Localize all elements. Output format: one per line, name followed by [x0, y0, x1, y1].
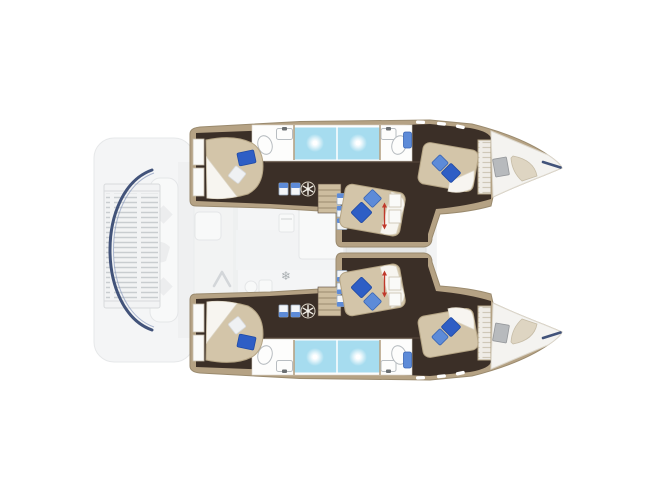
snowflake-icon: ❄ [281, 269, 291, 283]
stern-platform [104, 170, 160, 330]
screenshot-canvas: ❄ [0, 0, 667, 500]
catamaran-floorplan: ❄ [0, 0, 667, 500]
cockpit-table [195, 212, 221, 240]
galley-sink [245, 281, 257, 293]
oven-icon [279, 214, 294, 232]
galley-stove [259, 280, 272, 293]
